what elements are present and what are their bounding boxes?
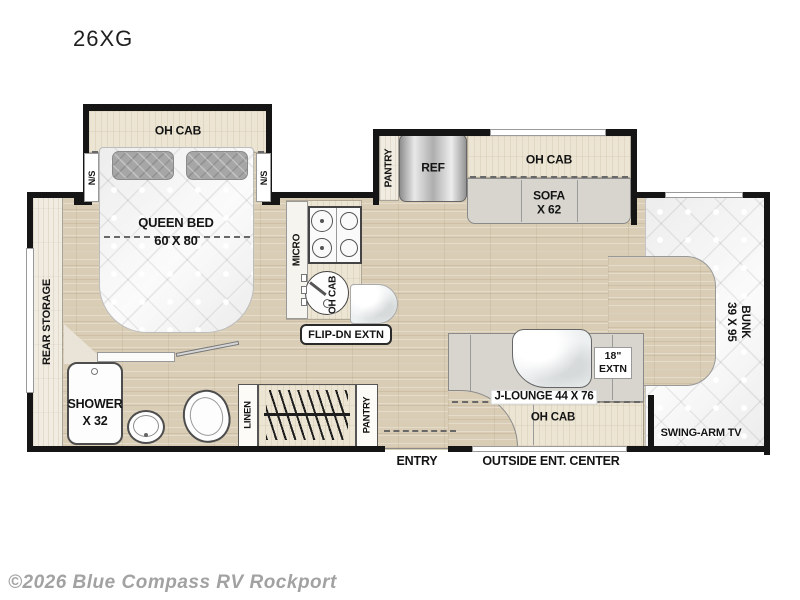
extension-size-label: 18"	[605, 350, 622, 363]
wall-bottom-left-segment	[27, 446, 385, 452]
bedroom-oh-cab-label: OH CAB	[155, 124, 201, 137]
queen-bed-label: QUEEN BED	[138, 216, 214, 230]
bunk-size-label: 39 X 95	[724, 302, 738, 342]
stove-burner-2-center	[320, 246, 324, 250]
extension-label: EXTN	[599, 363, 627, 376]
page-title: 26XG	[73, 26, 133, 52]
wall-bedroom-slide-top	[83, 104, 272, 111]
stove-divider	[336, 208, 337, 262]
lounge-oh-cab-label: OH CAB	[531, 412, 575, 425]
sofa-size-label: X 62	[537, 203, 561, 216]
flip-down-extension-label-box: FLIP-DN EXTN	[300, 324, 392, 345]
rear-storage-label: REAR STORAGE	[41, 279, 53, 365]
outside-ent-center-label: OUTSIDE ENT. CENTER	[482, 455, 619, 469]
pillow-right	[186, 151, 248, 180]
ns-left-label: N/S	[87, 171, 97, 185]
stove-knob-2	[301, 286, 307, 294]
wall-top-mid-segment	[269, 192, 376, 198]
ref-label: REF	[421, 161, 444, 174]
j-lounge-label: J-LOUNGE 44 X 76	[490, 390, 597, 405]
dinette-table	[512, 329, 592, 388]
j-lounge-cabinet-seam	[533, 404, 534, 445]
stove-burner-1-center	[320, 219, 324, 223]
entry-threshold	[385, 448, 448, 449]
ns-right-label: N/S	[259, 171, 269, 185]
sofa-oh-cab-label: OH CAB	[526, 153, 572, 166]
shower-label: SHOWER	[67, 398, 122, 412]
stove-knob-1	[301, 274, 307, 282]
linen-label: LINEN	[243, 401, 254, 429]
swing-arm-tv-label: SWING-ARM TV	[661, 427, 742, 439]
entry-step-line	[384, 430, 456, 432]
counter-extension	[350, 284, 398, 324]
table-extension-label-group: 18" EXTN	[594, 347, 632, 379]
shower-drain-icon	[91, 368, 98, 375]
window-left-wall	[26, 248, 34, 393]
sofa-label: SOFA	[533, 189, 565, 202]
wall-right	[764, 192, 770, 455]
dresser-shelf	[97, 352, 175, 362]
kitchen-oh-cab-label: OH CAB	[328, 276, 339, 314]
micro-label: MICRO	[292, 234, 303, 266]
entry-label: ENTRY	[397, 455, 438, 469]
stove-burner-4	[340, 239, 358, 257]
window-sofa-slide-top	[490, 129, 606, 136]
wall-walkway-stub	[648, 395, 654, 447]
wall-top-slide-right	[631, 129, 637, 225]
stove-burner-3	[340, 212, 358, 230]
stove-knob-3	[301, 298, 307, 306]
flip-down-extension-label: FLIP-DN EXTN	[308, 329, 384, 341]
wardrobe-rod	[264, 413, 350, 416]
bath-sink-drain-icon	[144, 433, 148, 437]
sofa-seam-1	[521, 180, 522, 222]
shower-size-label: X 32	[83, 415, 108, 429]
watermark: ©2026 Blue Compass RV Rockport	[8, 572, 337, 594]
window-bunk-top	[665, 192, 743, 198]
pantry-bottom-label: PANTRY	[362, 397, 373, 434]
pillow-left	[112, 151, 174, 180]
bunk-label: BUNK	[738, 305, 752, 338]
pantry-top-label: PANTRY	[384, 149, 395, 188]
outside-ent-center-door	[472, 446, 627, 452]
bunk-label-group: BUNK 39 X 95	[713, 297, 763, 347]
floorplan-page: 26XG	[0, 0, 800, 600]
queen-bed-size-label: 60 X 80	[154, 234, 197, 248]
sofa-seam-2	[577, 180, 578, 222]
